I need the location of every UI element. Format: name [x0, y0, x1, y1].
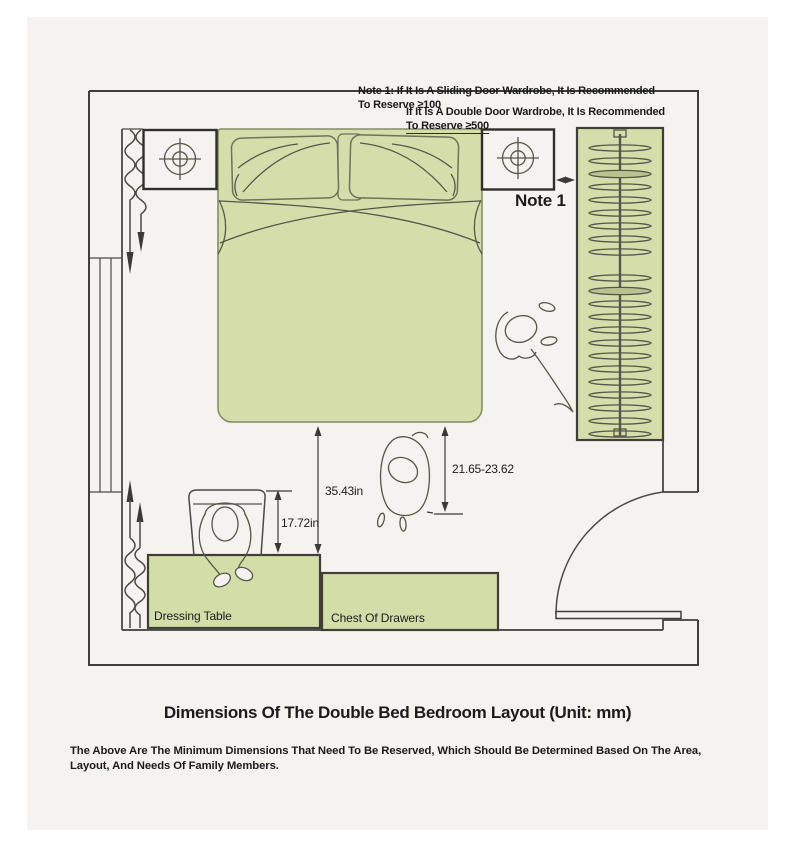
- screenshot-page: Note 1: If It Is A Sliding Door Wardrobe…: [0, 0, 790, 841]
- subtitle-line1: The Above Are The Minimum Dimensions Tha…: [70, 744, 730, 759]
- person-walking-bottom: [376, 432, 429, 531]
- note-double-line2: To Reserve ≥500: [406, 119, 489, 134]
- subtitle-line2: Layout, And Needs Of Family Members.: [70, 759, 730, 774]
- diagram-subtitle: The Above Are The Minimum Dimensions Tha…: [70, 744, 730, 774]
- person-walking-right: [496, 301, 573, 412]
- chest-of-drawers-label: Chest Of Drawers: [331, 611, 425, 625]
- dim-label-bed-to-table: 35.43in: [325, 484, 363, 498]
- door-leaf: [556, 612, 681, 619]
- curtain-sketch: [125, 130, 146, 628]
- dim-label-chair-clearance: 17.72in: [281, 516, 319, 530]
- door-swing-arc: [556, 492, 663, 614]
- note1-marker: Note 1: [515, 191, 566, 211]
- dimension-bed-to-table: [315, 426, 322, 554]
- note-sliding-line1: Note 1: If It Is A Sliding Door Wardrobe…: [358, 84, 655, 98]
- double-bed: [218, 129, 482, 422]
- wardrobe: [577, 128, 663, 440]
- dressing-table-label: Dressing Table: [154, 609, 232, 623]
- nightstand-left: [144, 130, 217, 189]
- note1-gap-arrow: [556, 177, 575, 184]
- note-double-line1: If It Is A Double Door Wardrobe, It Is R…: [406, 105, 665, 119]
- dim-label-side-walkway: 21.65-23.62: [452, 462, 514, 476]
- nightstand-right: [482, 130, 554, 190]
- pillow-left: [231, 136, 339, 201]
- diagram-title: Dimensions Of The Double Bed Bedroom Lay…: [27, 703, 768, 723]
- note-double-door: If It Is A Double Door Wardrobe, It Is R…: [406, 105, 665, 134]
- pillow-right: [349, 135, 459, 201]
- door: [556, 492, 681, 619]
